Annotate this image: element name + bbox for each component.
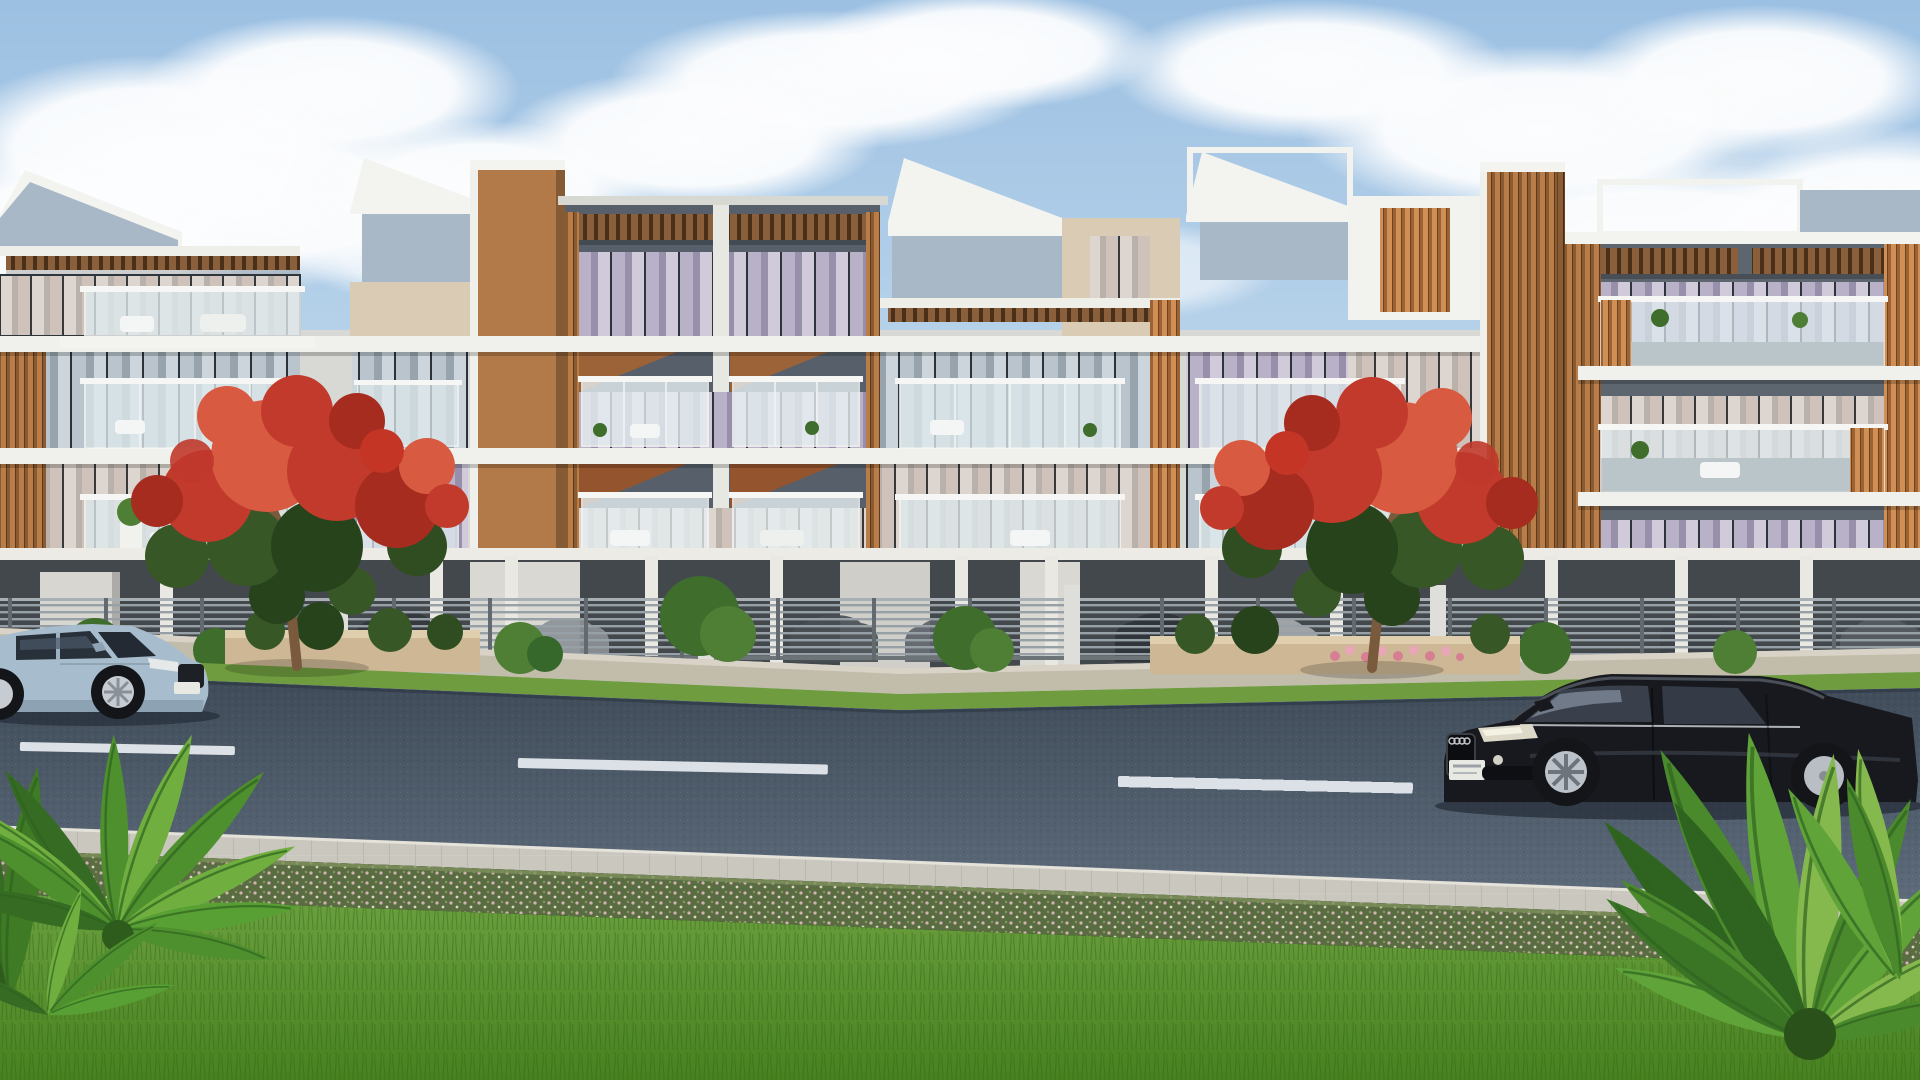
- panel-blue: [1200, 222, 1348, 280]
- sedan-front-wheel: [1532, 738, 1600, 806]
- panel-blue: [1800, 190, 1920, 234]
- pergola-slats: [1578, 248, 1738, 274]
- panel-blue: [892, 236, 1062, 298]
- panel-beige: [350, 282, 470, 336]
- suv-front-wheel: [91, 665, 145, 719]
- wood-louver-slot: [1380, 208, 1450, 312]
- balcony-glass: [1601, 300, 1884, 366]
- balcony: [60, 286, 315, 348]
- pergola-beam: [880, 298, 1180, 308]
- architectural-render-scene: [0, 0, 1920, 1080]
- pergola-slats: [6, 256, 300, 270]
- panel-blue: [362, 214, 470, 282]
- pergola-slats: [888, 308, 1180, 322]
- suv-license-plate: [174, 682, 200, 694]
- wood-louver-panel: [1850, 428, 1884, 492]
- pergola-beam: [0, 246, 300, 256]
- wood-louver-panel: [1601, 300, 1631, 366]
- balcony-glass: [1601, 428, 1884, 492]
- pergola-slats: [578, 214, 718, 240]
- sedan-license-plate: [1449, 760, 1485, 780]
- pergola-slats: [727, 214, 867, 240]
